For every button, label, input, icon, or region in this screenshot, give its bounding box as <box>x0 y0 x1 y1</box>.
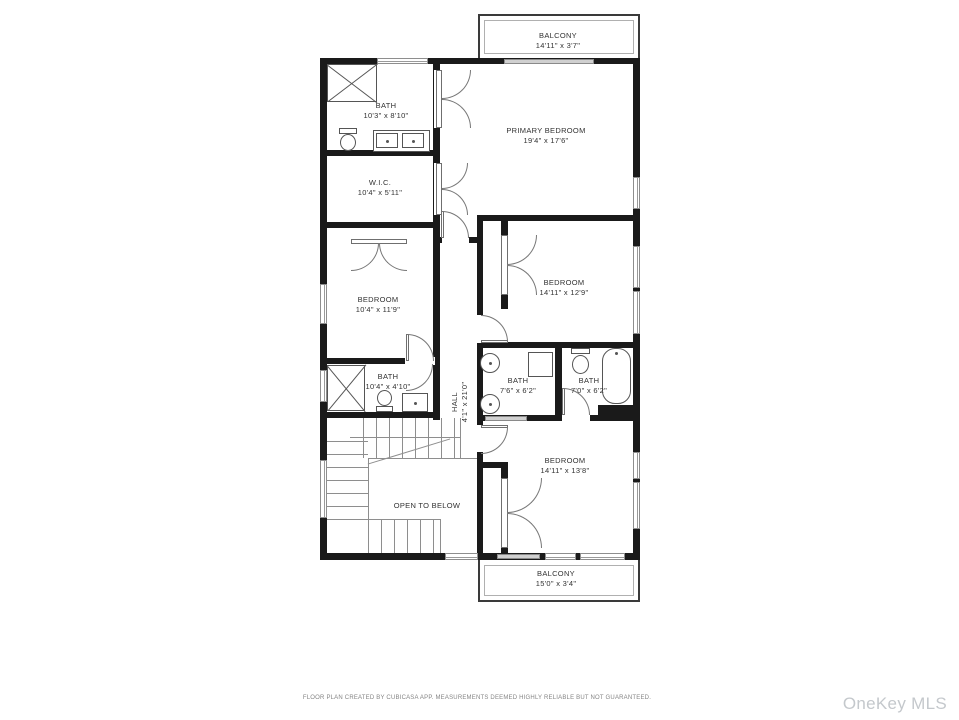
room-label-hall: HALL4'1" x 21'0" <box>450 382 470 423</box>
shower <box>327 64 377 102</box>
stair-tread <box>327 506 368 507</box>
stair-tread <box>433 520 434 553</box>
shower <box>528 352 553 377</box>
toilet-bowl <box>340 134 356 151</box>
room-label-open-to-below: OPEN TO BELOW <box>394 501 461 511</box>
stair-tread <box>327 441 368 442</box>
room-label-balcony-bottom: BALCONY15'0" x 3'4" <box>536 569 577 589</box>
stair-direction-line <box>368 438 451 464</box>
window <box>633 482 640 529</box>
door-swing-arc <box>379 243 407 271</box>
vanity-sink <box>376 133 398 148</box>
stair-tread <box>376 418 377 458</box>
stair-edge-line <box>460 418 461 458</box>
sink <box>480 353 500 373</box>
sliding-door <box>504 59 594 64</box>
door-swing-arc <box>507 478 542 513</box>
open-to-below-edge <box>368 458 477 459</box>
window <box>580 553 625 560</box>
stair-tread <box>327 493 368 494</box>
wall-segment <box>598 405 633 415</box>
door-swing-arc <box>442 99 471 128</box>
door-swing-arc <box>351 243 379 271</box>
toilet-bowl <box>572 355 589 374</box>
stair-tread <box>327 467 368 468</box>
stair-tread <box>363 418 364 458</box>
stair-tread <box>441 418 442 458</box>
pocket-door <box>485 416 527 421</box>
door-swing-arc <box>507 235 537 265</box>
stair-tread <box>415 418 416 458</box>
wall-segment <box>477 215 483 553</box>
stair-tread <box>394 520 395 553</box>
stair-tread <box>327 480 368 481</box>
window <box>320 284 327 324</box>
watermark: OneKey MLS <box>843 694 947 714</box>
door-swing-arc <box>481 427 508 454</box>
window <box>633 177 640 209</box>
disclaimer-text: FLOOR PLAN CREATED BY CUBICASA APP. MEAS… <box>303 695 651 701</box>
wall-segment <box>320 412 440 418</box>
room-label-bath-primary: BATH10'3" x 8'10" <box>363 101 408 121</box>
vanity-sink <box>402 133 424 148</box>
window <box>633 291 640 334</box>
window <box>320 460 327 518</box>
door-swing-arc <box>442 70 471 99</box>
room-label-bedroom-left: BEDROOM10'4" x 11'9" <box>356 295 400 315</box>
stair-tread <box>454 418 455 458</box>
stair-tread <box>428 418 429 458</box>
room-label-balcony-top: BALCONY14'11" x 3'7" <box>536 31 580 51</box>
door-swing-arc <box>507 265 537 295</box>
room-label-primary-bedroom: PRIMARY BEDROOM19'4" x 17'6" <box>506 126 585 146</box>
stair-tread <box>327 454 368 455</box>
door-opening <box>562 415 590 421</box>
shower <box>327 365 365 411</box>
stair-tread <box>407 520 408 553</box>
stair-tread <box>389 418 390 458</box>
room-label-wic: W.I.C.10'4" x 5'11" <box>358 178 402 198</box>
door-swing-arc <box>407 334 434 361</box>
stair-tread <box>368 520 369 553</box>
door-swing-arc <box>442 163 468 189</box>
window <box>320 370 327 402</box>
open-to-below-edge <box>368 458 369 520</box>
sink <box>402 393 428 412</box>
open-to-below-edge <box>440 520 441 553</box>
stair-landing-line <box>350 437 460 438</box>
closet-stub-wall <box>501 462 508 478</box>
wall-segment <box>320 222 440 228</box>
window <box>545 553 576 560</box>
window <box>377 58 428 64</box>
door-swing-arc <box>507 513 542 548</box>
closet-stub-wall <box>501 295 508 309</box>
room-label-bedroom-mid: BEDROOM14'11" x 12'9" <box>540 278 589 298</box>
toilet-bowl <box>377 390 392 406</box>
toilet-tank <box>571 348 590 354</box>
floor-plan-page: BALCONY14'11" x 3'7" BATH10'3" x 8'10" P… <box>0 0 959 720</box>
door-swing-arc <box>442 211 469 238</box>
sliding-door <box>497 554 540 559</box>
stair-tread <box>381 520 382 553</box>
stair-tread <box>327 519 368 520</box>
window <box>445 553 478 560</box>
window <box>633 452 640 479</box>
window <box>633 246 640 288</box>
stair-tread <box>420 520 421 553</box>
sink <box>480 394 500 414</box>
open-to-below-edge <box>368 519 441 520</box>
room-label-bath-lower: BATH10'4" x 4'10" <box>365 372 410 392</box>
room-label-bath-hall: BATH7'6" x 6'2" <box>500 376 536 396</box>
room-label-bedroom-bottom: BEDROOM14'11" x 13'8" <box>541 456 590 476</box>
room-label-bath-ensuite: BATH7'0" x 6'2" <box>571 376 607 396</box>
door-swing-arc <box>481 315 508 342</box>
wall-segment <box>555 342 562 421</box>
closet-stub-wall <box>501 221 508 235</box>
toilet-tank <box>376 406 393 412</box>
